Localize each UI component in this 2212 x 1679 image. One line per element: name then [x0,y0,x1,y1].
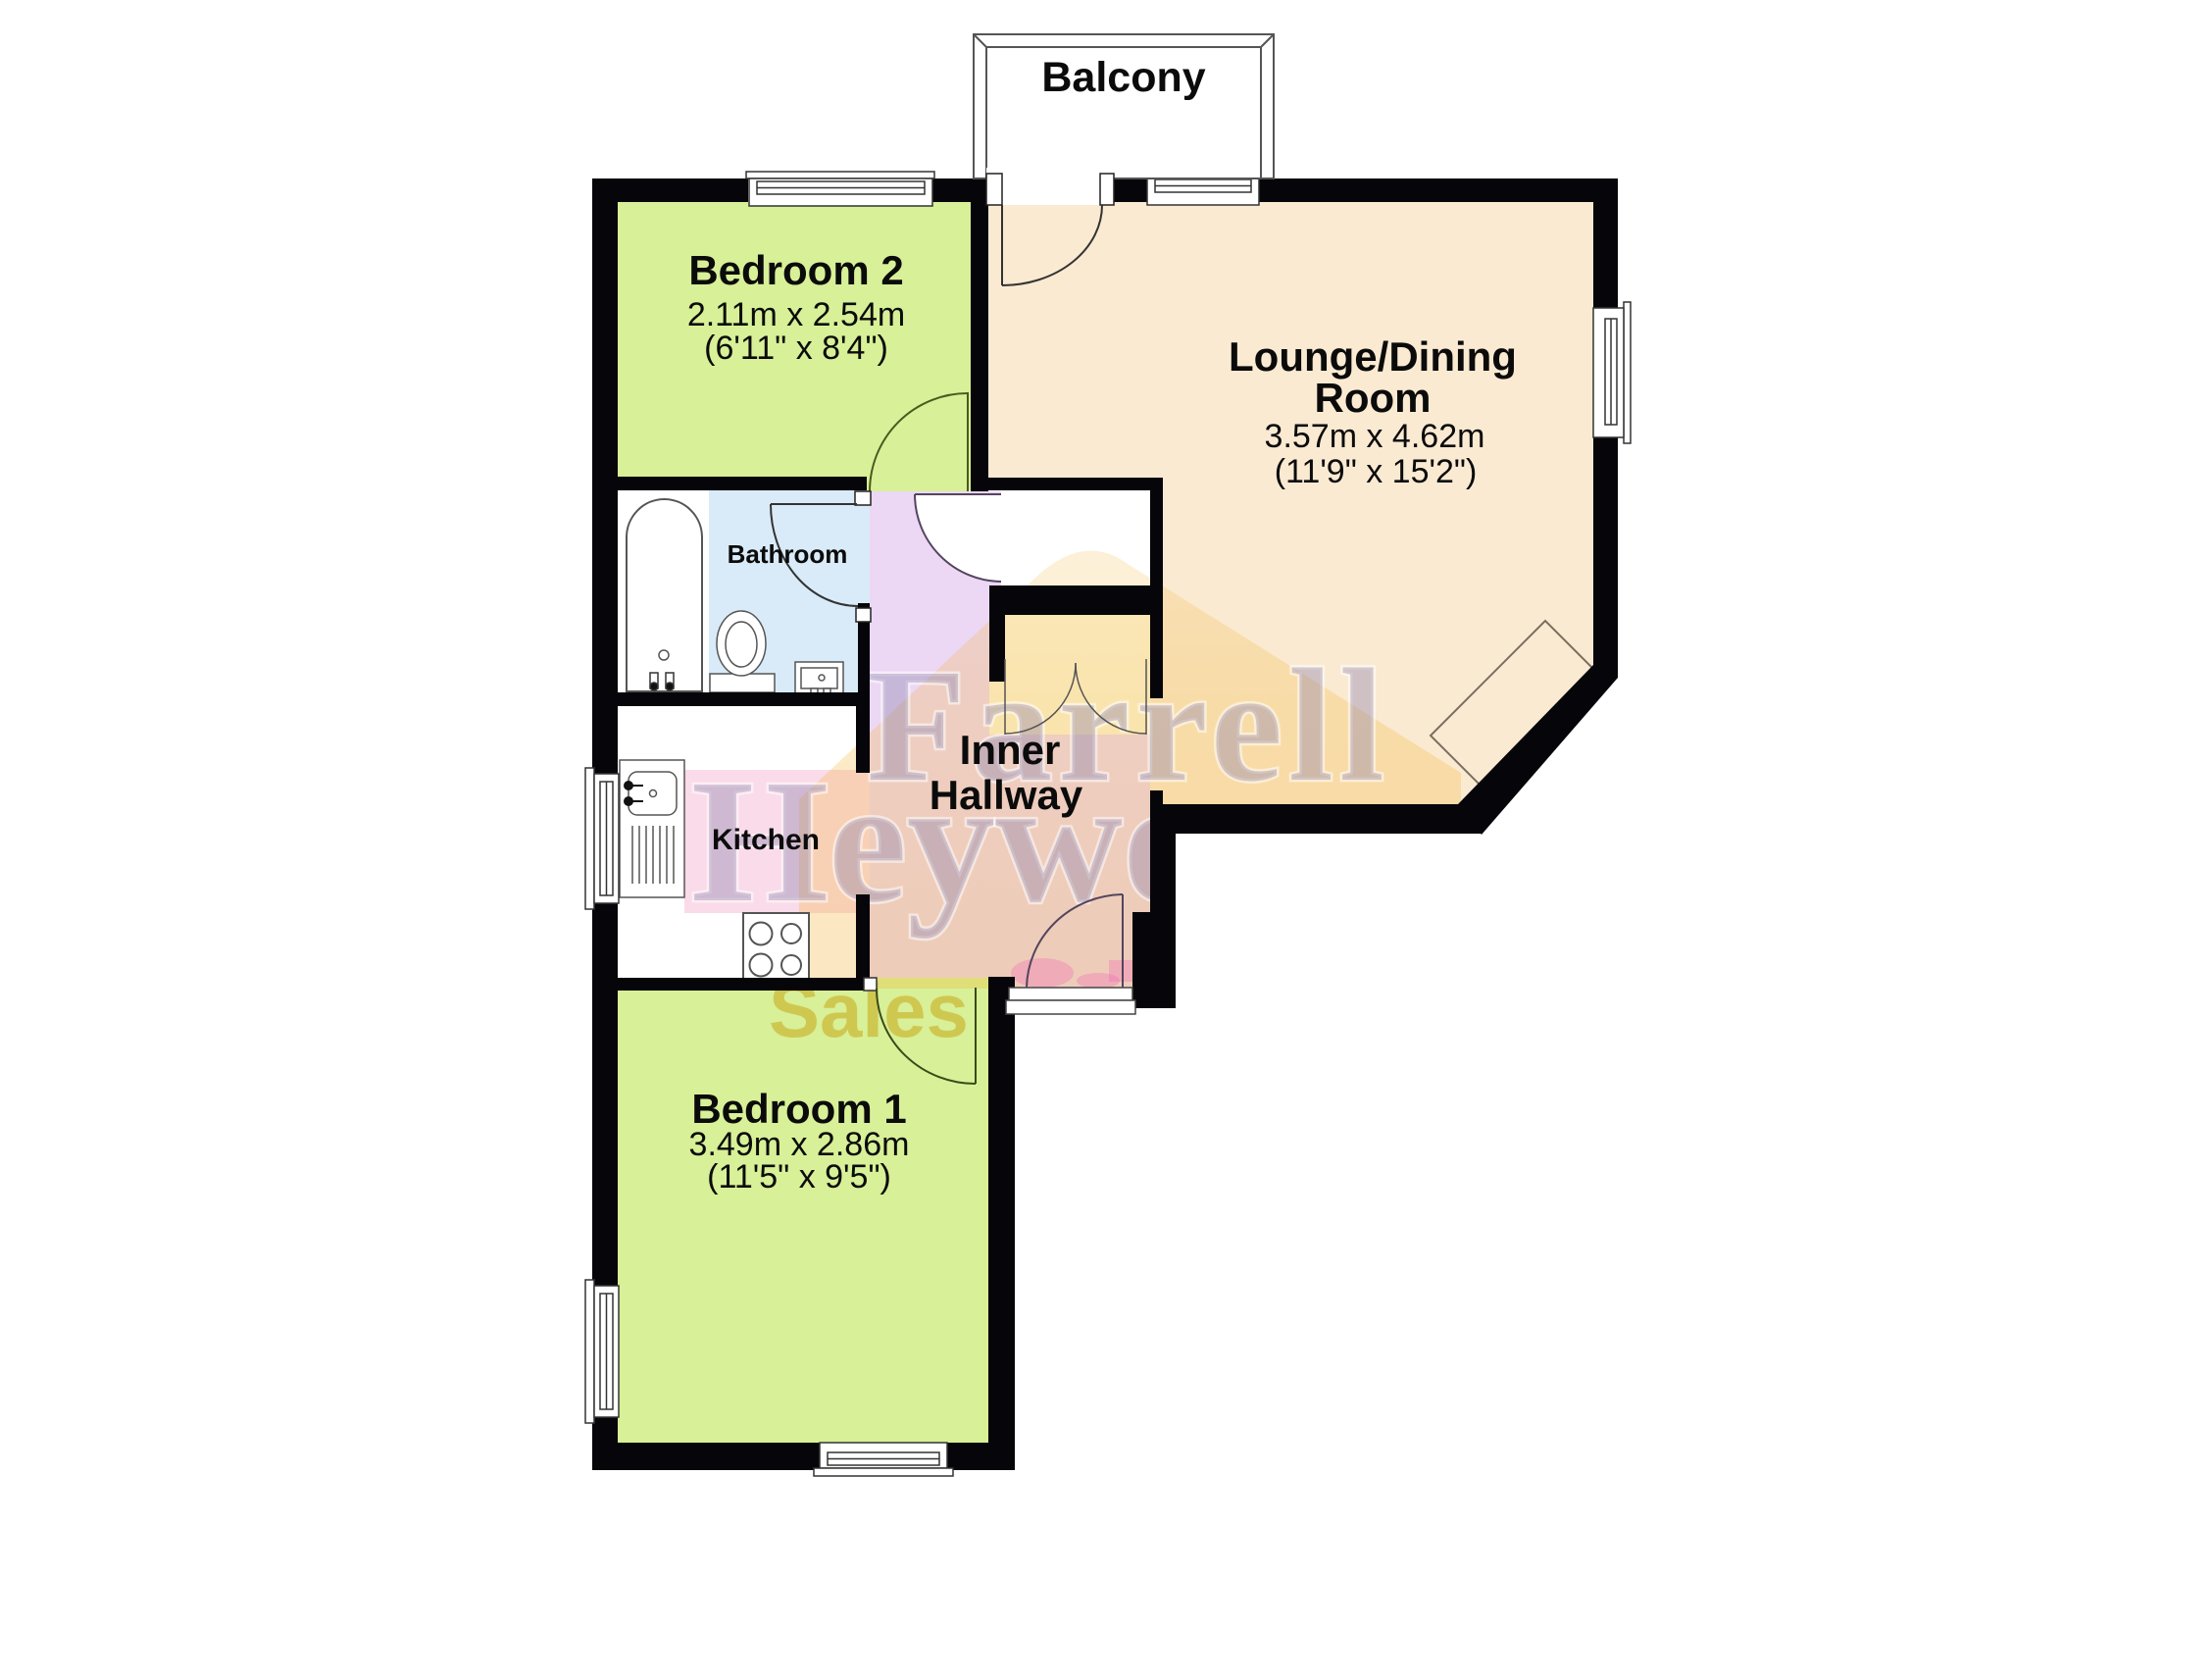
svg-text:Balcony: Balcony [1041,54,1205,101]
svg-text:Bedroom 2: Bedroom 2 [688,247,903,293]
svg-text:Bedroom 1: Bedroom 1 [691,1086,906,1132]
svg-text:3.57m x 4.62m: 3.57m x 4.62m [1265,418,1485,455]
svg-text:2.11m x 2.54m: 2.11m x 2.54m [687,296,905,333]
svg-text:Inner: Inner [960,727,1061,773]
svg-text:(11'9" x 15'2"): (11'9" x 15'2") [1275,453,1478,490]
svg-text:Hallway: Hallway [930,772,1083,818]
svg-text:Kitchen: Kitchen [712,824,820,856]
svg-text:Bathroom: Bathroom [728,539,848,569]
svg-text:Room: Room [1315,375,1432,421]
svg-text:(6'11" x 8'4"): (6'11" x 8'4") [704,330,888,367]
svg-text:(11'5" x 9'5"): (11'5" x 9'5") [707,1158,891,1196]
svg-text:Lounge/Dining: Lounge/Dining [1229,333,1517,380]
